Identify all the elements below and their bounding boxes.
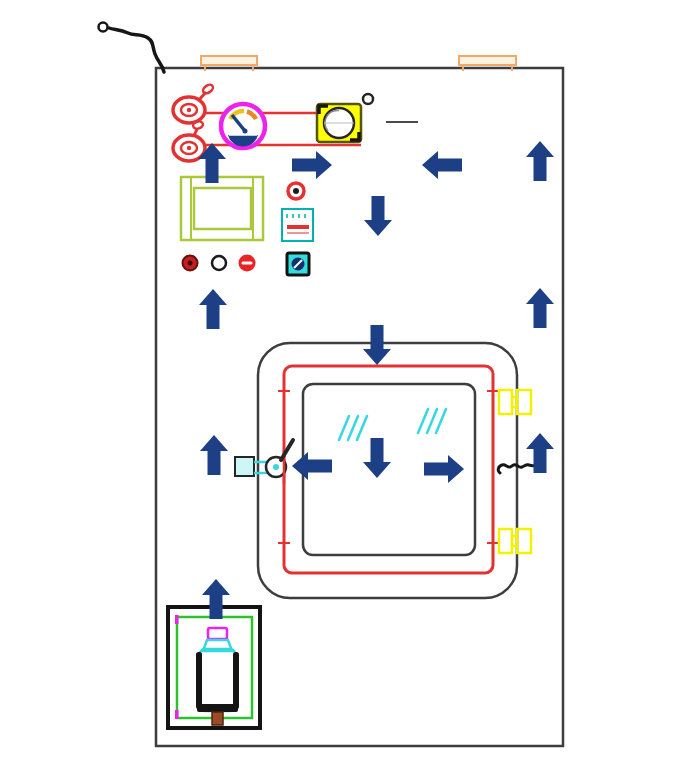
power-switch bbox=[287, 253, 309, 275]
handle-base bbox=[235, 457, 254, 476]
fan-port-icon bbox=[363, 94, 373, 104]
display-bar bbox=[287, 225, 309, 229]
emergency-stop-button bbox=[239, 255, 256, 272]
schematic-canvas bbox=[0, 0, 700, 771]
pressure-gauge bbox=[221, 104, 265, 148]
indicator-light-2 bbox=[212, 256, 226, 270]
bottle-cabinet bbox=[168, 607, 260, 728]
power-cable bbox=[99, 23, 165, 73]
bottle-base bbox=[212, 712, 223, 725]
cable-connector-icon bbox=[99, 23, 108, 32]
indicator-light-1 bbox=[183, 256, 198, 271]
bottle-cap bbox=[208, 628, 227, 639]
controller-box bbox=[282, 209, 313, 241]
fan-blower bbox=[317, 104, 361, 142]
window-assembly bbox=[258, 343, 517, 598]
